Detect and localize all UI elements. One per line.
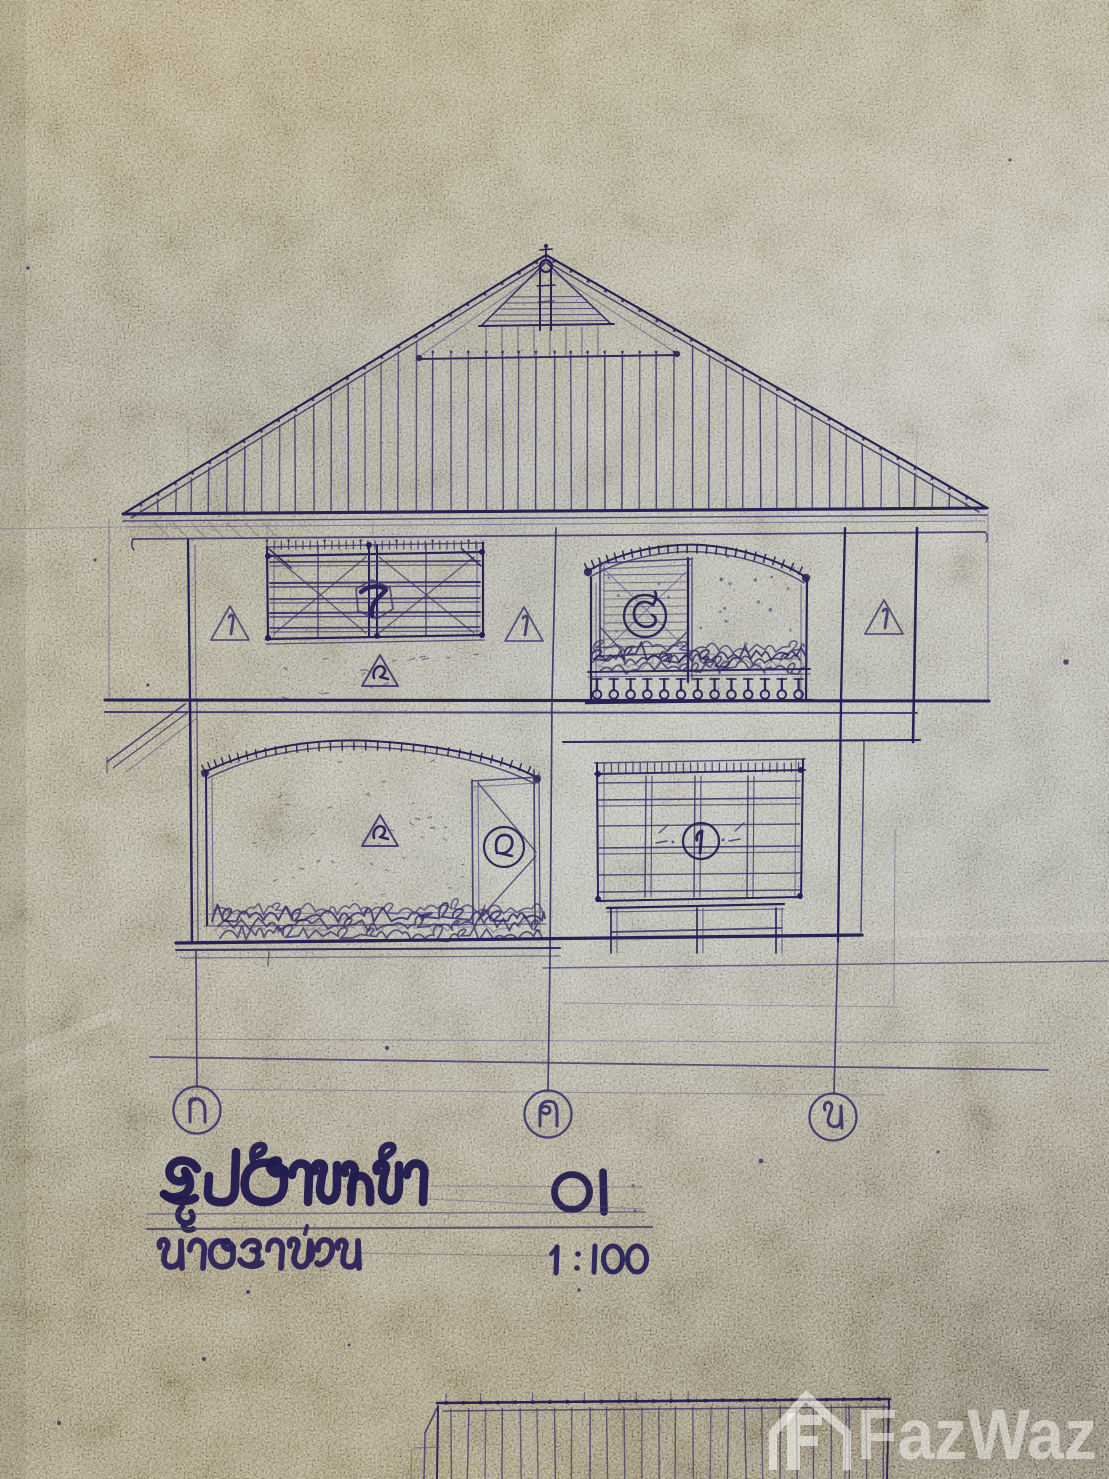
svg-text:FazWaz: FazWaz [857, 1396, 1097, 1475]
